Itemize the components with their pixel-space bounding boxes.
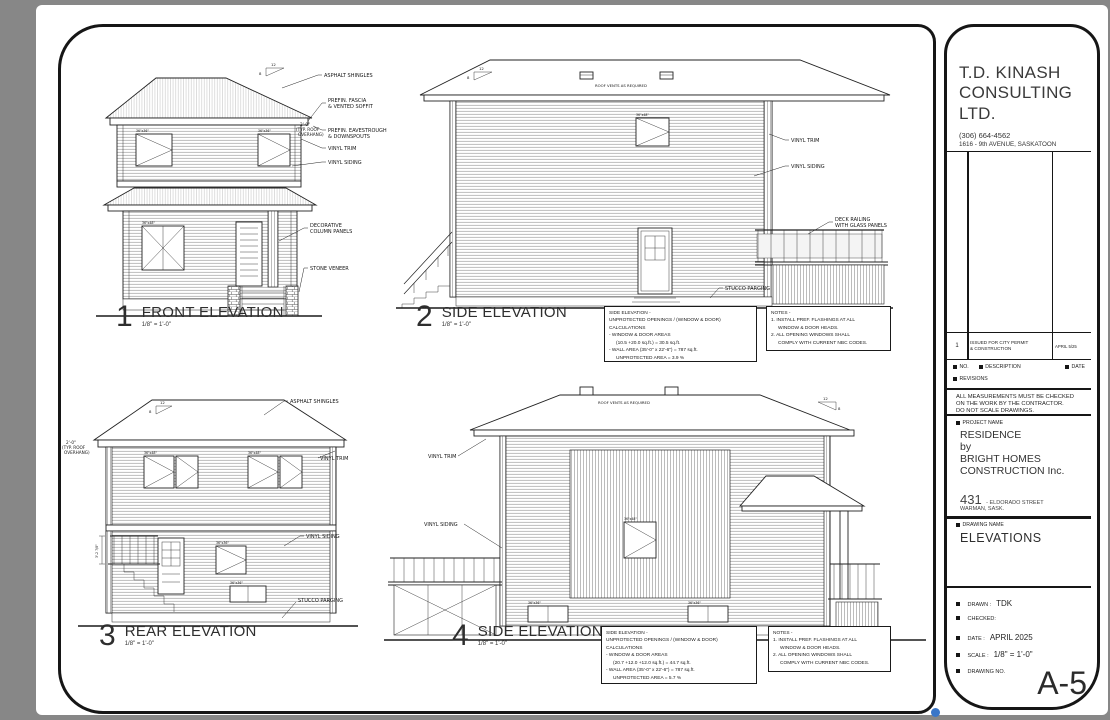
slope-run: 8 bbox=[259, 71, 262, 76]
label-eavestrough-2: & DOWNSPOUTS bbox=[328, 134, 370, 140]
window-size-tag: 36"x36" bbox=[688, 601, 701, 605]
window-size-tag: 36"x48" bbox=[636, 113, 649, 117]
upper-window-pair-left: 36"x48" bbox=[144, 451, 198, 488]
deck-skirt bbox=[772, 265, 884, 304]
label-vinyl-siding: VINYL SIDING bbox=[306, 534, 340, 540]
revision-number: 1 bbox=[947, 343, 967, 349]
window-size-tag: 36"x48" bbox=[624, 517, 637, 521]
roof bbox=[94, 400, 346, 440]
calc-line: (10.5 +20.0 sq.ft.) = 30.5 sq.ft. bbox=[609, 340, 752, 347]
label-vinyl-trim: VINYL TRIM bbox=[320, 456, 348, 462]
project-line-2: by bbox=[960, 441, 1064, 453]
project-name: RESIDENCE by BRIGHT HOMES CONSTRUCTION I… bbox=[960, 429, 1064, 477]
calc-line: - WALL AREA (35'-0" x 22'-6") = 787 sq.f… bbox=[606, 667, 752, 674]
label-roof-vents: ROOF VENTS AS REQUIRED bbox=[595, 83, 647, 88]
main-floor-window: 36"x48" bbox=[142, 221, 184, 270]
label-vinyl-trim: VINYL TRIM bbox=[791, 138, 819, 144]
divider bbox=[947, 516, 1091, 519]
company-line-2: CONSULTING bbox=[959, 83, 1072, 103]
header-description: DESCRIPTION bbox=[979, 364, 1021, 370]
corner-trim-right bbox=[764, 101, 772, 297]
window-size-tag: 36"x36" bbox=[258, 129, 271, 133]
calc-title: SIDE ELEVATION - bbox=[606, 630, 752, 637]
company-line-1: T.D. KINASH bbox=[959, 63, 1072, 83]
bullet-square bbox=[956, 523, 960, 527]
window-size-tag: 36"x48" bbox=[142, 221, 155, 225]
project-name-label-text: PROJECT NAME bbox=[963, 420, 1004, 426]
disclaimer-line-2: ON THE WORK BY THE CONTRACTOR. bbox=[956, 401, 1074, 408]
divider bbox=[947, 414, 1091, 416]
side-elevation-2-calc-box: SIDE ELEVATION - UNPROTECTED OPENINGS / … bbox=[604, 306, 757, 362]
calc-line: UNPROTECTED OPENINGS / (WINDOW & DOOR) C… bbox=[609, 317, 752, 332]
company-name: T.D. KINASH CONSULTING LTD. bbox=[959, 63, 1072, 124]
street-number: 431 bbox=[960, 492, 982, 507]
drawing-scale: 1/8" = 1'-0" bbox=[442, 322, 567, 328]
bullet-square bbox=[956, 602, 960, 606]
fascia bbox=[98, 440, 344, 447]
second-floor-window-left: 36"x36" bbox=[136, 129, 172, 166]
drawing-title-text: SIDE ELEVATION bbox=[478, 623, 603, 640]
notes-line: WINDOW & DOOR HEADS. bbox=[771, 325, 886, 332]
rear-elevation-title: 3 REAR ELEVATION 1/8" = 1'-0" bbox=[99, 623, 257, 649]
calc-line: UNPROTECTED AREA = 3.9 % bbox=[609, 355, 752, 362]
company-phone: (306) 664-4562 bbox=[959, 131, 1010, 140]
entry-door bbox=[236, 222, 262, 286]
artifact-blue-dot bbox=[931, 708, 940, 717]
bullet-square bbox=[956, 616, 960, 620]
drawing-number: 4 bbox=[452, 623, 469, 649]
company-address: 1616 - 9th AVENUE, SASKATOON bbox=[959, 141, 1056, 148]
callout-labels: VINYL TRIM VINYL SIDING bbox=[424, 439, 502, 548]
bullet-square bbox=[956, 653, 960, 657]
label-vinyl-siding: VINYL SIDING bbox=[328, 160, 362, 166]
slope-run: 8 bbox=[838, 406, 841, 411]
porch-railing bbox=[828, 564, 882, 599]
drawing-title-text: SIDE ELEVATION bbox=[442, 304, 567, 321]
drawn-row: DRAWN :TDK bbox=[956, 599, 1012, 608]
foundation-parging bbox=[112, 613, 330, 622]
notes-line: COMPLY WITH CURRENT NBC CODES. bbox=[771, 340, 886, 347]
drawing-number: 3 bbox=[99, 623, 116, 649]
window-size-tag: 36"x36" bbox=[230, 581, 243, 585]
label-vinyl-trim: VINYL TRIM bbox=[328, 146, 356, 152]
corner-trim-left-lower bbox=[106, 531, 112, 613]
window-size-tag: 36"x36" bbox=[216, 541, 229, 545]
project-line-1: RESIDENCE bbox=[960, 429, 1064, 441]
revision-desc-2: & CONSTRUCTION bbox=[970, 346, 1053, 352]
window-size-tag: 36"x36" bbox=[136, 129, 149, 133]
label-vinyl-trim: VINYL TRIM bbox=[428, 454, 456, 460]
label-deck-railing-2: WITH GLASS PANELS bbox=[835, 223, 887, 229]
revision-headers: NO. DESCRIPTION DATE bbox=[953, 364, 1085, 370]
drawing-no-label: DRAWING NO. bbox=[968, 669, 1006, 675]
notes-title: NOTES - bbox=[773, 630, 886, 637]
checked-row: CHECKED: bbox=[956, 616, 996, 622]
front-elevation-title: 1 FRONT ELEVATION 1/8" = 1'-0" bbox=[116, 304, 284, 330]
drawing-name: ELEVATIONS bbox=[960, 531, 1042, 545]
corner-trim-left bbox=[106, 447, 112, 525]
drawing-name-label: DRAWING NAME bbox=[956, 522, 1004, 528]
dim-roof-overhang-3: OVERHANG) bbox=[298, 132, 324, 137]
label-stone-veneer: STONE VENEER bbox=[310, 266, 349, 272]
revision-row: 1 ISSUED FOR CITY PERMIT & CONSTRUCTION … bbox=[947, 332, 1091, 360]
notes-title: NOTES - bbox=[771, 310, 886, 317]
calc-line: - WINDOW & DOOR AREAS bbox=[609, 332, 752, 339]
upper-window-pair-right: 36"x48" bbox=[248, 451, 302, 488]
notes-line: 2. ALL OPENING WINDOWS SHALL bbox=[771, 332, 886, 339]
notes-line: 2. ALL OPENING WINDOWS SHALL bbox=[773, 652, 886, 659]
front-elevation-drawing: 36"x36" 36"x36" 36"x48" 12 8 ASPHALT SHI… bbox=[60, 42, 395, 308]
fascia bbox=[474, 430, 854, 436]
date-row: DATE :APRIL 2025 bbox=[956, 633, 1033, 642]
revision-table: 1 ISSUED FOR CITY PERMIT & CONSTRUCTION … bbox=[947, 151, 1091, 360]
bullet-square bbox=[1065, 365, 1069, 369]
roof-slope-marker: 12 8 bbox=[259, 62, 284, 76]
rear-door bbox=[158, 538, 184, 594]
roof bbox=[420, 60, 890, 95]
roof bbox=[470, 395, 850, 430]
revision-date: APRIL 5/25 bbox=[1053, 344, 1091, 349]
corner-trim-left bbox=[450, 101, 456, 297]
belt-trim bbox=[117, 181, 301, 187]
project-name-label: PROJECT NAME bbox=[956, 420, 1003, 426]
drawing-scale: 1/8" = 1'-0" bbox=[142, 322, 284, 328]
drawn-value: TDK bbox=[996, 599, 1012, 608]
company-line-3: LTD. bbox=[959, 104, 1072, 124]
drawn-label: DRAWN : bbox=[968, 602, 992, 608]
calc-line: - WALL AREA (35'-0" x 22'-6") = 787 sq.f… bbox=[609, 347, 752, 354]
label-asphalt-shingles: ASPHALT SHINGLES bbox=[324, 73, 373, 79]
label-vinyl-siding: VINYL SIDING bbox=[424, 522, 458, 528]
slope-rise: 12 bbox=[823, 396, 828, 401]
drawing-scale: 1/8" = 1'-0" bbox=[478, 641, 603, 647]
label-stucco-parging: STUCCO PARGING bbox=[725, 286, 770, 292]
side-elevation-2-title: 2 SIDE ELEVATION 1/8" = 1'-0" bbox=[416, 304, 567, 330]
notes-line: COMPLY WITH CURRENT NBC CODES. bbox=[773, 660, 886, 667]
notes-line: 1. INSTALL PREF. FLASHINGS AT ALL bbox=[773, 637, 886, 644]
drawing-title-text: REAR ELEVATION bbox=[125, 623, 257, 640]
belt-trim bbox=[106, 525, 336, 531]
dim-deck-height: 3'-2 7/8" bbox=[95, 544, 99, 558]
porch-column bbox=[840, 511, 848, 599]
bullet-square bbox=[979, 365, 983, 369]
calc-line: (20.7 +12.0 +12.0 sq.ft.) = 44.7 sq.ft. bbox=[606, 660, 752, 667]
main-window: 36"x36" bbox=[216, 541, 246, 574]
drawing-number: 2 bbox=[416, 304, 433, 330]
fascia bbox=[424, 95, 884, 101]
side-elevation-4-title: 4 SIDE ELEVATION 1/8" = 1'-0" bbox=[452, 623, 603, 649]
notes-line: 1. INSTALL PREF. FLASHINGS AT ALL bbox=[771, 317, 886, 324]
deck-railing bbox=[755, 230, 888, 265]
dim-roof-overhang-3: OVERHANG) bbox=[64, 450, 90, 455]
title-block: T.D. KINASH CONSULTING LTD. (306) 664-45… bbox=[944, 24, 1100, 710]
upper-window: 36"x48" bbox=[636, 113, 669, 146]
drawing-name-label-text: DRAWING NAME bbox=[963, 522, 1004, 528]
side-elevation-4-calc-box: SIDE ELEVATION - UNPROTECTED OPENINGS / … bbox=[601, 626, 757, 684]
calc-title: SIDE ELEVATION - bbox=[609, 310, 752, 317]
bullet-square bbox=[956, 421, 960, 425]
checked-label: CHECKED: bbox=[968, 616, 996, 622]
label-vinyl-siding: VINYL SIDING bbox=[791, 164, 825, 170]
deck-height-dim: 3'-2 7/8" bbox=[95, 536, 105, 564]
calc-line: UNPROTECTED AREA = 5.7 % bbox=[606, 675, 752, 682]
scale-label: SCALE : bbox=[968, 653, 989, 659]
date-label: DATE : bbox=[968, 636, 985, 642]
side-door bbox=[638, 228, 672, 294]
scale-value: 1/8" = 1'-0" bbox=[994, 650, 1033, 659]
drawing-scale: 1/8" = 1'-0" bbox=[125, 641, 257, 647]
calc-line: - WINDOW & DOOR AREAS bbox=[606, 652, 752, 659]
bullet-square bbox=[953, 365, 957, 369]
revisions-label-text: REVISIONS bbox=[960, 376, 988, 382]
label-asphalt-shingles: ASPHALT SHINGLES bbox=[290, 399, 339, 405]
label-column-panels-2: COLUMN PANELS bbox=[310, 229, 352, 235]
header-date: DATE bbox=[1065, 364, 1085, 370]
corner-trim-right bbox=[824, 436, 830, 626]
corner-trim-left bbox=[500, 436, 506, 626]
calc-line: UNPROTECTED OPENINGS / (WINDOW & DOOR) C… bbox=[606, 637, 752, 652]
header-no: NO. bbox=[953, 364, 969, 370]
divider bbox=[947, 388, 1091, 390]
label-roof-vents: ROOF VENTS AS REQUIRED bbox=[598, 400, 650, 405]
upper-fascia bbox=[110, 118, 308, 125]
header-date-label: DATE bbox=[1072, 364, 1085, 370]
slope-rise: 12 bbox=[479, 66, 484, 71]
drawing-title-text: FRONT ELEVATION bbox=[142, 304, 284, 321]
disclaimer: ALL MEASUREMENTS MUST BE CHECKED ON THE … bbox=[956, 394, 1074, 415]
drawing-number: 1 bbox=[116, 304, 133, 330]
window-size-tag: 36"x48" bbox=[248, 451, 261, 455]
slope-rise: 12 bbox=[160, 400, 165, 405]
scale-row: SCALE :1/8" = 1'-0" bbox=[956, 650, 1033, 659]
panel-window: 36"x48" bbox=[624, 517, 656, 558]
label-fascia-soffit-2: & VENTED SOFFIT bbox=[328, 104, 374, 110]
revisions-label: REVISIONS bbox=[953, 376, 988, 382]
roof-slope-marker: 12 8 bbox=[818, 396, 841, 411]
revision-description: ISSUED FOR CITY PERMIT & CONSTRUCTION bbox=[967, 340, 1053, 352]
mid-fascia bbox=[108, 205, 312, 211]
general-notes-box-top: NOTES - 1. INSTALL PREF. FLASHINGS AT AL… bbox=[766, 306, 891, 351]
side-wall bbox=[450, 101, 772, 297]
general-notes-box-bottom: NOTES - 1. INSTALL PREF. FLASHINGS AT AL… bbox=[768, 626, 891, 672]
project-line-3: BRIGHT HOMES bbox=[960, 453, 1064, 465]
bullet-square bbox=[956, 636, 960, 640]
notes-line: WINDOW & DOOR HEADS. bbox=[773, 645, 886, 652]
roof-vents bbox=[580, 387, 678, 395]
bullet-square bbox=[953, 377, 957, 381]
drawing-no-row: DRAWING NO. bbox=[956, 669, 1005, 675]
date-value: APRIL 2025 bbox=[990, 633, 1033, 642]
window-size-tag: 36"x36" bbox=[528, 601, 541, 605]
second-floor-window-right: 36"x36" bbox=[258, 129, 290, 166]
divider bbox=[947, 586, 1091, 588]
table-divider bbox=[1052, 152, 1054, 360]
project-line-4: CONSTRUCTION Inc. bbox=[960, 465, 1064, 477]
decorative-column bbox=[268, 211, 278, 287]
upper-roof bbox=[106, 78, 312, 118]
disclaimer-line-1: ALL MEASUREMENTS MUST BE CHECKED bbox=[956, 394, 1074, 401]
header-description-label: DESCRIPTION bbox=[985, 364, 1020, 370]
left-stairs bbox=[402, 232, 452, 308]
sheet-number: A-5 bbox=[1037, 665, 1087, 702]
slope-rise: 12 bbox=[271, 62, 276, 67]
window-size-tag: 36"x48" bbox=[144, 451, 157, 455]
project-city: WARMAN, SASK. bbox=[960, 506, 1004, 512]
mid-roof bbox=[104, 188, 316, 205]
header-no-label: NO. bbox=[960, 364, 969, 370]
table-divider bbox=[967, 152, 969, 360]
bullet-square bbox=[956, 669, 960, 673]
label-stucco-parging: STUCCO PARGING bbox=[298, 598, 343, 604]
